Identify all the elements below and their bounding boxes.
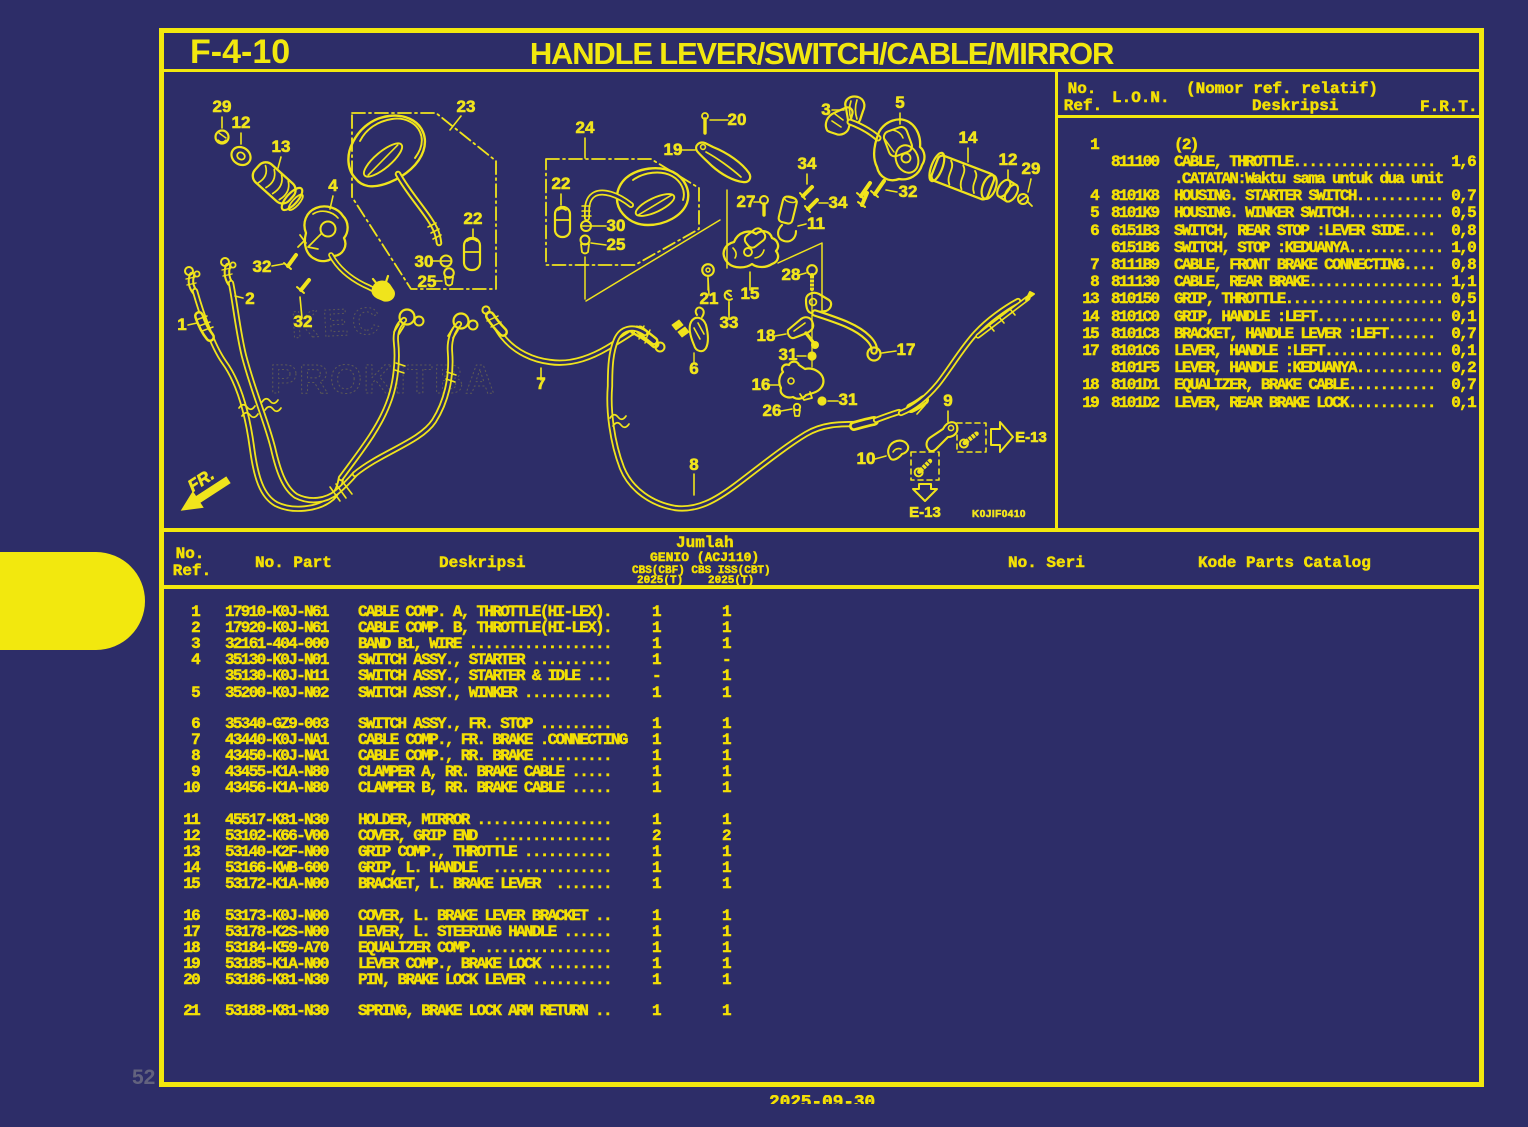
svg-text:34: 34 xyxy=(829,193,848,212)
svg-text:5: 5 xyxy=(895,93,904,112)
svg-text:K0JIF0410: K0JIF0410 xyxy=(972,509,1026,520)
svg-text:E-13: E-13 xyxy=(909,504,941,521)
svg-text:E-13: E-13 xyxy=(1015,429,1047,446)
svg-text:30: 30 xyxy=(415,252,434,271)
svg-text:14: 14 xyxy=(959,128,978,147)
svg-text:2: 2 xyxy=(245,289,254,308)
svg-text:18: 18 xyxy=(757,326,776,345)
svg-text:32: 32 xyxy=(899,182,918,201)
svg-text:9: 9 xyxy=(943,391,952,410)
svg-text:10: 10 xyxy=(857,449,876,468)
svg-text:24: 24 xyxy=(576,118,595,137)
svg-text:26: 26 xyxy=(763,401,782,420)
svg-text:8: 8 xyxy=(689,455,698,474)
svg-text:19: 19 xyxy=(664,140,683,159)
svg-text:16: 16 xyxy=(752,375,771,394)
svg-text:29: 29 xyxy=(213,97,232,116)
svg-text:27: 27 xyxy=(737,192,756,211)
svg-text:25: 25 xyxy=(607,235,626,254)
svg-text:6: 6 xyxy=(689,359,698,378)
svg-text:12: 12 xyxy=(232,113,251,132)
svg-text:20: 20 xyxy=(728,110,747,129)
svg-text:22: 22 xyxy=(552,174,571,193)
svg-text:29: 29 xyxy=(1022,159,1041,178)
svg-text:4: 4 xyxy=(328,176,338,195)
svg-text:1: 1 xyxy=(177,315,186,334)
svg-text:30: 30 xyxy=(607,216,626,235)
svg-text:31: 31 xyxy=(839,390,858,409)
svg-text:23: 23 xyxy=(457,97,476,116)
svg-text:12: 12 xyxy=(999,150,1018,169)
svg-text:32: 32 xyxy=(253,257,272,276)
svg-text:17: 17 xyxy=(897,340,916,359)
svg-text:34: 34 xyxy=(798,154,817,173)
svg-text:25: 25 xyxy=(418,272,437,291)
svg-text:PROKITBA: PROKITBA xyxy=(270,356,496,402)
svg-text:28: 28 xyxy=(782,265,801,284)
svg-text:3: 3 xyxy=(821,100,830,119)
svg-text:13: 13 xyxy=(272,137,291,156)
svg-text:32: 32 xyxy=(294,312,313,331)
svg-text:11: 11 xyxy=(807,214,825,233)
svg-text:22: 22 xyxy=(464,209,483,228)
svg-text:31: 31 xyxy=(779,345,798,364)
